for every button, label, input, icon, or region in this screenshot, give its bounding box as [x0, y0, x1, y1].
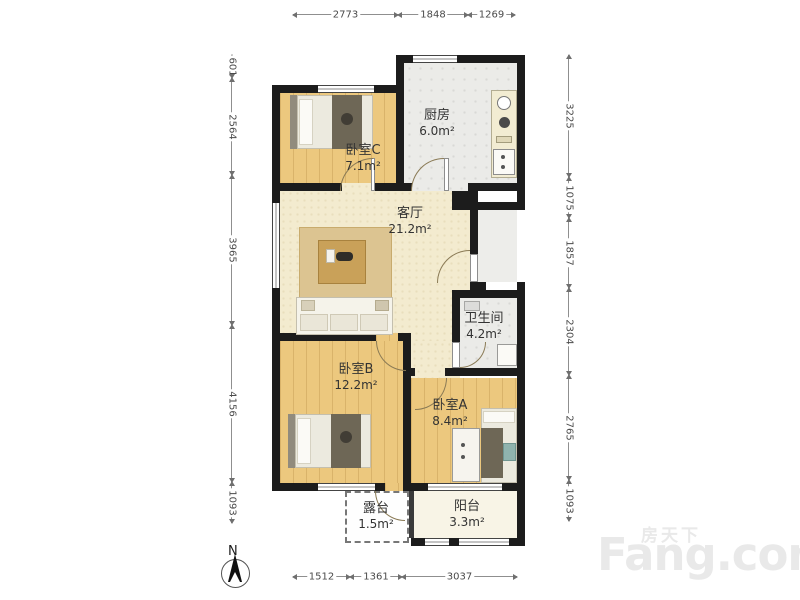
window	[272, 203, 280, 288]
wall	[517, 55, 525, 202]
bed-accent-pillow	[503, 443, 516, 461]
door-leaf-entry	[470, 254, 478, 282]
room-area: 8.4m²	[414, 414, 486, 429]
kitchen-burner	[499, 117, 510, 128]
dimension-segment-left: 601	[231, 55, 232, 78]
wall	[452, 290, 525, 298]
room-name: 客厅	[374, 206, 446, 222]
wall	[272, 85, 280, 491]
room-label-balcony: 阳台 3.3m²	[432, 499, 502, 530]
dimension-value: 2564	[227, 112, 238, 141]
room-name: 露台	[348, 501, 404, 517]
room-name: 卧室B	[318, 362, 394, 378]
table-decor	[336, 252, 353, 261]
dimension-value: 1093	[227, 488, 238, 517]
nightstand-knob	[461, 443, 465, 447]
room-label-bedroom-b: 卧室B 12.2m²	[318, 362, 394, 393]
room-area: 1.5m²	[348, 517, 404, 532]
dimension-segment-top: 1848	[398, 14, 468, 15]
dimension-segment-bottom: 1512	[293, 576, 350, 577]
room-area: 4.2m²	[450, 327, 518, 342]
room-area: 3.3m²	[432, 515, 502, 530]
room-area: 12.2m²	[318, 378, 394, 393]
dimension-segment-right: 1093	[568, 480, 569, 521]
window	[318, 483, 375, 491]
wall	[517, 282, 525, 546]
wall	[396, 55, 404, 191]
room-label-bedroom-c: 卧室C 7.1m²	[330, 143, 396, 174]
dimension-value: 1075	[564, 183, 575, 212]
room-name: 卧室A	[414, 398, 486, 414]
floorplan-canvas: 厨房 6.0m² 卧室C 7.1m² 客厅 21.2m² 卫生间 4.2m² 卧…	[0, 0, 800, 600]
wall	[445, 368, 525, 376]
wall	[272, 183, 342, 191]
dimension-segment-bottom: 1361	[350, 576, 402, 577]
dimension-value: 3965	[227, 235, 238, 264]
dimension-value: 601	[227, 55, 238, 78]
room-name: 卫生间	[450, 311, 518, 327]
wall	[272, 483, 318, 491]
sofa-cushion	[330, 314, 358, 331]
room-name: 卧室C	[330, 143, 396, 159]
bed-headboard	[288, 414, 295, 468]
bed-pillow	[297, 418, 311, 464]
room-name: 阳台	[432, 499, 502, 515]
kitchen-item	[496, 136, 512, 143]
dimension-segment-left: 1093	[231, 482, 232, 523]
window	[428, 483, 502, 491]
dimension-segment-right: 2304	[568, 288, 569, 375]
dimension-value: 2765	[564, 413, 575, 442]
wall	[409, 491, 414, 538]
room-label-bedroom-a: 卧室A 8.4m²	[414, 398, 486, 429]
dimension-value: 1269	[477, 9, 506, 20]
door-leaf	[444, 158, 449, 191]
stove-knob	[501, 165, 505, 169]
wall	[374, 183, 412, 191]
bed-blanket	[481, 428, 503, 478]
dimension-value: 2304	[564, 317, 575, 346]
dimension-value: 1857	[564, 238, 575, 267]
dimension-segment-right: 2765	[568, 375, 569, 480]
bed-cushion	[340, 431, 352, 443]
stove-knob	[501, 155, 505, 159]
dimension-segment-right: 3225	[568, 55, 569, 177]
dimension-segment-right: 1857	[568, 218, 569, 288]
bed-headboard	[290, 95, 297, 149]
room-area: 21.2m²	[374, 222, 446, 237]
sofa-cushion	[360, 314, 388, 331]
bed-pillow	[483, 411, 515, 423]
sofa-pillow	[375, 300, 389, 311]
kitchen-stove	[493, 149, 515, 175]
dimension-segment-left: 2564	[231, 78, 232, 175]
window	[459, 538, 509, 546]
dimension-value: 1848	[418, 9, 447, 20]
room-label-bathroom: 卫生间 4.2m²	[450, 311, 518, 342]
sofa-pillow	[301, 300, 315, 311]
dimension-segment-top: 2773	[293, 14, 398, 15]
nightstand	[452, 428, 480, 482]
dimension-value: 3037	[445, 571, 474, 582]
dimension-segment-top: 1269	[468, 14, 515, 15]
sofa-cushion	[300, 314, 328, 331]
dimension-value: 1093	[564, 486, 575, 515]
dimension-segment-right: 1075	[568, 177, 569, 218]
floor-entry-landing	[478, 210, 517, 282]
door-leaf	[452, 342, 460, 368]
dimension-value: 3225	[564, 101, 575, 130]
window	[425, 538, 449, 546]
nightstand-knob	[461, 455, 465, 459]
table-decor	[326, 249, 335, 263]
dimension-segment-bottom: 3037	[402, 576, 517, 577]
wall	[468, 183, 525, 191]
window	[318, 85, 374, 93]
wall	[470, 202, 478, 254]
kitchen-sink	[497, 96, 511, 110]
window	[413, 55, 457, 63]
room-area: 7.1m²	[330, 159, 396, 174]
dimension-value: 1361	[361, 571, 390, 582]
bathroom-vanity	[497, 344, 517, 366]
bed-pillow	[299, 99, 313, 145]
dimension-segment-left: 4156	[231, 325, 232, 482]
room-label-living-room: 客厅 21.2m²	[374, 206, 446, 237]
wall	[375, 483, 385, 491]
dimension-value: 1512	[307, 571, 336, 582]
dimension-value: 4156	[227, 389, 238, 418]
room-label-terrace: 露台 1.5m²	[348, 501, 404, 532]
bed-cushion	[341, 113, 353, 125]
room-area: 6.0m²	[404, 124, 470, 139]
room-label-kitchen: 厨房 6.0m²	[404, 108, 470, 139]
dimension-segment-left: 3965	[231, 175, 232, 325]
dimension-value: 2773	[331, 9, 360, 20]
fang-watermark-logo: Fang.com	[597, 528, 800, 581]
bathroom-fixture	[464, 301, 480, 311]
room-name: 厨房	[404, 108, 470, 124]
floor-patch	[385, 483, 404, 491]
north-arrow-notch	[230, 572, 240, 582]
wall	[470, 202, 525, 210]
